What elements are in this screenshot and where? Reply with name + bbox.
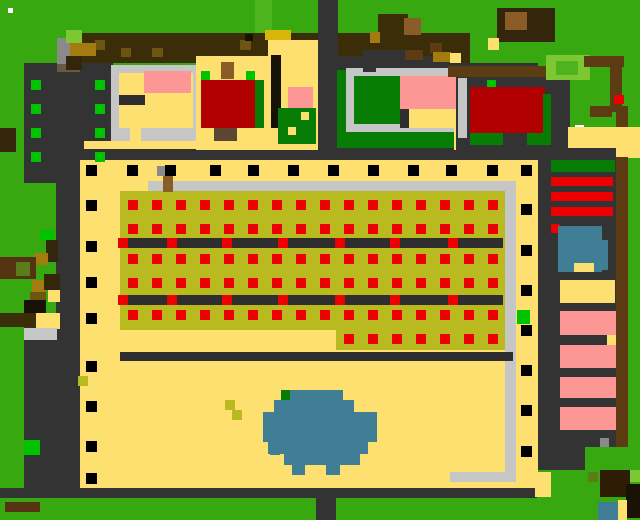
crop-dot-r0-c10	[368, 200, 378, 210]
crop-dot-r6-c6	[448, 238, 458, 248]
dirt-speck-1	[95, 40, 105, 50]
band-black-pixel	[245, 34, 253, 41]
fence-posts-top-3	[210, 165, 221, 176]
crate-lamps-col-b-2	[95, 128, 105, 138]
crop-dot-r7-c3	[278, 295, 288, 305]
dirt-speck-2	[121, 48, 131, 57]
fence-posts-top-10	[487, 165, 498, 176]
barn2-strip-b2	[527, 133, 551, 145]
gold-bit	[433, 52, 451, 62]
crop-dot-r1-c8	[320, 224, 330, 234]
crop-dot-r4-c2	[176, 310, 186, 320]
border-bottom	[0, 488, 537, 498]
crop-dot-r7-c6	[448, 295, 458, 305]
crate-lamps-col-a-2	[31, 128, 41, 138]
crop-dot-r5-c4	[440, 334, 450, 344]
marker-post	[163, 176, 173, 192]
crate-lamps-col-a-1	[31, 104, 41, 114]
crop-dot-r3-c1	[152, 278, 162, 288]
crop-dot-r7-c0	[118, 295, 128, 305]
crop-dot-r2-c7	[296, 254, 306, 264]
crop-dot-r3-c3	[200, 278, 210, 288]
fence-posts-right-1	[521, 245, 532, 256]
pond-6	[292, 463, 305, 475]
house1-table	[119, 95, 145, 105]
fence-posts-top-6	[328, 165, 339, 176]
field-bar-2	[121, 295, 503, 305]
tree-tr-crown	[505, 12, 527, 30]
crop-dot-r4-c4	[224, 310, 234, 320]
crop-dot-r3-c0	[128, 278, 138, 288]
barn2-strip-b1	[470, 133, 503, 145]
crate-lamps-col-b-1	[95, 104, 105, 114]
crop-dot-r2-c13	[440, 254, 450, 264]
pond-3	[263, 412, 377, 442]
fence-posts-right-2	[521, 285, 532, 296]
house2-room-green	[354, 76, 400, 124]
crop-dot-r1-c14	[464, 224, 474, 234]
crate-lamps-col-a-3	[31, 152, 41, 162]
road-top	[318, 0, 338, 150]
crop-dot-r4-c14	[464, 310, 474, 320]
fence-posts-left-7	[86, 473, 97, 484]
crop-dot-r4-c10	[368, 310, 378, 320]
fence-posts-right-6	[521, 446, 532, 457]
crop-dot-r1-c13	[440, 224, 450, 234]
crate-lamps-col-b-0	[95, 80, 105, 90]
strip-red-bar-1	[551, 177, 613, 186]
barn1-roof-door	[221, 62, 234, 79]
crop-dot-r4-c0	[128, 310, 138, 320]
crop-dot-r5-c2	[392, 334, 402, 344]
stump-sand-b	[36, 313, 60, 329]
crop-dot-r6-c1	[167, 238, 177, 248]
crop-dot-r3-c8	[320, 278, 330, 288]
fence-bit-a	[405, 50, 423, 60]
olive-px-se	[588, 472, 598, 482]
crop-dot-r1-c10	[368, 224, 378, 234]
road-left-lower	[24, 320, 80, 488]
barn1-lamp-left	[201, 71, 210, 80]
crop-dot-r0-c7	[296, 200, 306, 210]
crop-dot-r4-c9	[344, 310, 354, 320]
barn2-edge	[458, 78, 467, 138]
tree-mid-gold	[370, 32, 380, 43]
grove-speck-a	[288, 127, 296, 135]
path-dark-a	[363, 50, 407, 62]
green-sq-corridor	[517, 310, 530, 324]
crop-dot-r3-c10	[368, 278, 378, 288]
barn1-door	[214, 128, 237, 141]
crop-dot-r7-c5	[390, 295, 400, 305]
dirt-speck-3	[152, 48, 163, 57]
crop-dot-r7-c2	[222, 295, 232, 305]
house2-room-pink	[400, 76, 458, 109]
crop-dot-r0-c12	[416, 200, 426, 210]
crop-dot-r3-c4	[224, 278, 234, 288]
crop-dot-r2-c11	[392, 254, 402, 264]
crop-dot-r1-c6	[272, 224, 282, 234]
crop-dot-r6-c0	[118, 238, 128, 248]
crop-dot-r3-c6	[272, 278, 282, 288]
crop-dot-r1-c2	[176, 224, 186, 234]
green-sq-road	[24, 440, 40, 455]
crop-dot-r2-c2	[176, 254, 186, 264]
crop-dot-r6-c4	[335, 238, 345, 248]
crop-dot-r4-c6	[272, 310, 282, 320]
stump-black	[24, 300, 46, 314]
crop-dot-r1-c12	[416, 224, 426, 234]
crop-dot-r0-c11	[392, 200, 402, 210]
stump-stone	[24, 328, 57, 340]
stump-dark	[44, 274, 60, 290]
field-bottom-bar	[120, 352, 513, 361]
crop-dot-r3-c12	[416, 278, 426, 288]
crop-dot-r2-c6	[272, 254, 282, 264]
field-bar-1	[121, 238, 503, 248]
fence-posts-top-11	[521, 165, 532, 176]
crop-dot-r4-c1	[152, 310, 162, 320]
crop-dot-r3-c11	[392, 278, 402, 288]
crop-dot-r0-c15	[488, 200, 498, 210]
crop-dot-r3-c13	[440, 278, 450, 288]
crop-dot-r1-c15	[488, 224, 498, 234]
fence-posts-top-1	[127, 165, 138, 176]
bed-3	[560, 377, 616, 398]
tree-tl-gold	[70, 43, 96, 56]
crop-dot-r2-c15	[488, 254, 498, 264]
crop-dot-r5-c0	[344, 334, 354, 344]
crop-dot-r0-c6	[272, 200, 282, 210]
crop-dot-r2-c8	[320, 254, 330, 264]
bed-1	[560, 311, 616, 335]
crop-dot-r1-c9	[344, 224, 354, 234]
crop-dot-r6-c2	[222, 238, 232, 248]
barn2-body	[470, 87, 545, 133]
crop-dot-r2-c4	[224, 254, 234, 264]
brown-rect-left	[0, 128, 16, 152]
crate-lamps-col-b-3	[95, 152, 105, 162]
crop-dot-r0-c3	[200, 200, 210, 210]
bed-yellow-px	[607, 335, 616, 345]
crop-dot-r3-c5	[248, 278, 258, 288]
crop-dot-r4-c3	[200, 310, 210, 320]
crop-dot-r3-c9	[344, 278, 354, 288]
fence-h3	[590, 106, 612, 117]
crop-dot-r0-c5	[248, 200, 258, 210]
crop-dot-r0-c13	[440, 200, 450, 210]
crop-dot-r4-c15	[488, 310, 498, 320]
pond-8	[270, 445, 280, 455]
tree-mid-crown	[404, 18, 421, 35]
crop-dot-r6-c3	[278, 238, 288, 248]
crop-dot-r1-c7	[296, 224, 306, 234]
crop-dot-r1-c11	[392, 224, 402, 234]
gold-cap	[265, 30, 291, 40]
crop-dot-r1-c0	[128, 224, 138, 234]
tree-se-leaf	[630, 470, 640, 482]
field-border-right	[505, 181, 516, 482]
strip-green-bar	[551, 160, 615, 172]
tank-right	[596, 240, 608, 270]
gray-box	[600, 438, 609, 447]
crop-dot-r2-c1	[152, 254, 162, 264]
crop-dot-r0-c8	[320, 200, 330, 210]
sand-bit-2	[488, 38, 499, 50]
stump-olive	[16, 262, 30, 276]
crop-dot-r0-c2	[176, 200, 186, 210]
fence-posts-left-6	[86, 441, 97, 452]
fence-posts-right-5	[521, 405, 532, 416]
bed-2	[560, 345, 616, 368]
crop-dot-r6-c5	[390, 238, 400, 248]
crop-dot-r4-c11	[392, 310, 402, 320]
crop-dot-r2-c9	[344, 254, 354, 264]
crop-dot-r5-c6	[488, 334, 498, 344]
stump-gold-a	[34, 253, 48, 265]
tree-tl-leaf	[66, 30, 82, 43]
pond-se	[598, 502, 620, 520]
sand-sliver-se	[618, 500, 627, 520]
game-map[interactable]	[0, 0, 640, 520]
fence-h1	[448, 66, 548, 77]
fence-posts-left-1	[86, 241, 97, 252]
fence-posts-left-3	[86, 313, 97, 324]
crop-dot-r5-c3	[416, 334, 426, 344]
crop-dot-r2-c12	[416, 254, 426, 264]
crop-dot-r5-c5	[464, 334, 474, 344]
crop-dot-r7-c1	[167, 295, 177, 305]
field-border-stub	[450, 472, 516, 482]
crop-dot-r0-c1	[152, 200, 162, 210]
fence-posts-right-0	[521, 204, 532, 215]
crop-dot-r7-c4	[335, 295, 345, 305]
fence-posts-left-4	[86, 361, 97, 372]
crop-dot-r2-c5	[248, 254, 258, 264]
fence-posts-left-5	[86, 401, 97, 412]
fence-posts-left-0	[86, 200, 97, 211]
corner-yellow	[535, 472, 551, 497]
crop-dot-r1-c1	[152, 224, 162, 234]
house2-notch	[400, 109, 409, 128]
white-pixel	[8, 8, 13, 13]
barn2-strip-right	[543, 94, 551, 133]
sand-bit	[450, 53, 461, 63]
fence-posts-top-0	[86, 165, 97, 176]
path-dark-b	[363, 62, 376, 72]
crate-lamps-col-a-0	[31, 80, 41, 90]
room-yellow	[560, 280, 615, 303]
fence-posts-top-8	[408, 165, 419, 176]
fence-posts-right-4	[521, 365, 532, 376]
strip-red-bar-2	[551, 192, 613, 201]
crop-dot-r0-c9	[344, 200, 354, 210]
crop-dot-r4-c7	[296, 310, 306, 320]
crop-dot-r3-c2	[176, 278, 186, 288]
crop-dot-r2-c3	[200, 254, 210, 264]
strip-red-bar-3	[551, 207, 613, 216]
sand-speck-2	[225, 400, 235, 410]
fence-posts-right-3	[521, 325, 532, 336]
wild-berry	[614, 95, 624, 104]
crop-dot-r0-c0	[128, 200, 138, 210]
crop-dot-r0-c4	[224, 200, 234, 210]
crop-dot-r2-c14	[464, 254, 474, 264]
field-border-top	[148, 181, 513, 191]
tree-tl-trunk	[66, 56, 82, 70]
dirt-speck-4	[240, 40, 251, 50]
house1-door	[130, 128, 141, 141]
road-bottom	[316, 488, 336, 520]
crop-dot-r3-c15	[488, 278, 498, 288]
crop-dot-r3-c14	[464, 278, 474, 288]
sand-speck-1	[78, 376, 88, 386]
barn1-body	[201, 80, 257, 128]
house1-rug	[144, 71, 191, 93]
barn1-lamp-right	[246, 71, 255, 80]
crop-dot-r0-c14	[464, 200, 474, 210]
fence-posts-top-5	[288, 165, 299, 176]
tank-notch	[574, 263, 594, 272]
bush-inner	[556, 61, 578, 75]
crop-dot-r2-c10	[368, 254, 378, 264]
barn1-side-strip	[255, 80, 264, 128]
fence-posts-top-7	[368, 165, 379, 176]
crop-dot-r1-c3	[200, 224, 210, 234]
road-left-mid	[56, 183, 80, 323]
crop-dot-r1-c4	[224, 224, 234, 234]
fence-posts-top-2	[165, 165, 176, 176]
fence-posts-top-9	[446, 165, 457, 176]
pond-7	[326, 463, 340, 475]
crop-dot-r4-c8	[320, 310, 330, 320]
pond-plant	[281, 390, 290, 400]
corner-grass	[585, 447, 616, 470]
stump-sand	[48, 290, 60, 302]
crop-dot-r4-c12	[416, 310, 426, 320]
crop-dot-r4-c13	[440, 310, 450, 320]
fence-posts-left-2	[86, 277, 97, 288]
grove-tree	[278, 108, 316, 144]
crop-dot-r3-c7	[296, 278, 306, 288]
fence-posts-top-4	[248, 165, 259, 176]
fence-strip-east	[616, 157, 628, 447]
crop-dot-r4-c5	[248, 310, 258, 320]
trail-mark	[5, 502, 40, 512]
bed-4	[560, 407, 616, 430]
crop-dot-r5-c1	[368, 334, 378, 344]
crop-dot-r1-c5	[248, 224, 258, 234]
tree-se-dark	[626, 484, 640, 518]
crop-dot-r2-c0	[128, 254, 138, 264]
sand-speck-3	[232, 410, 242, 420]
top-light-column	[255, 0, 272, 33]
grove-speck-b	[301, 112, 309, 120]
